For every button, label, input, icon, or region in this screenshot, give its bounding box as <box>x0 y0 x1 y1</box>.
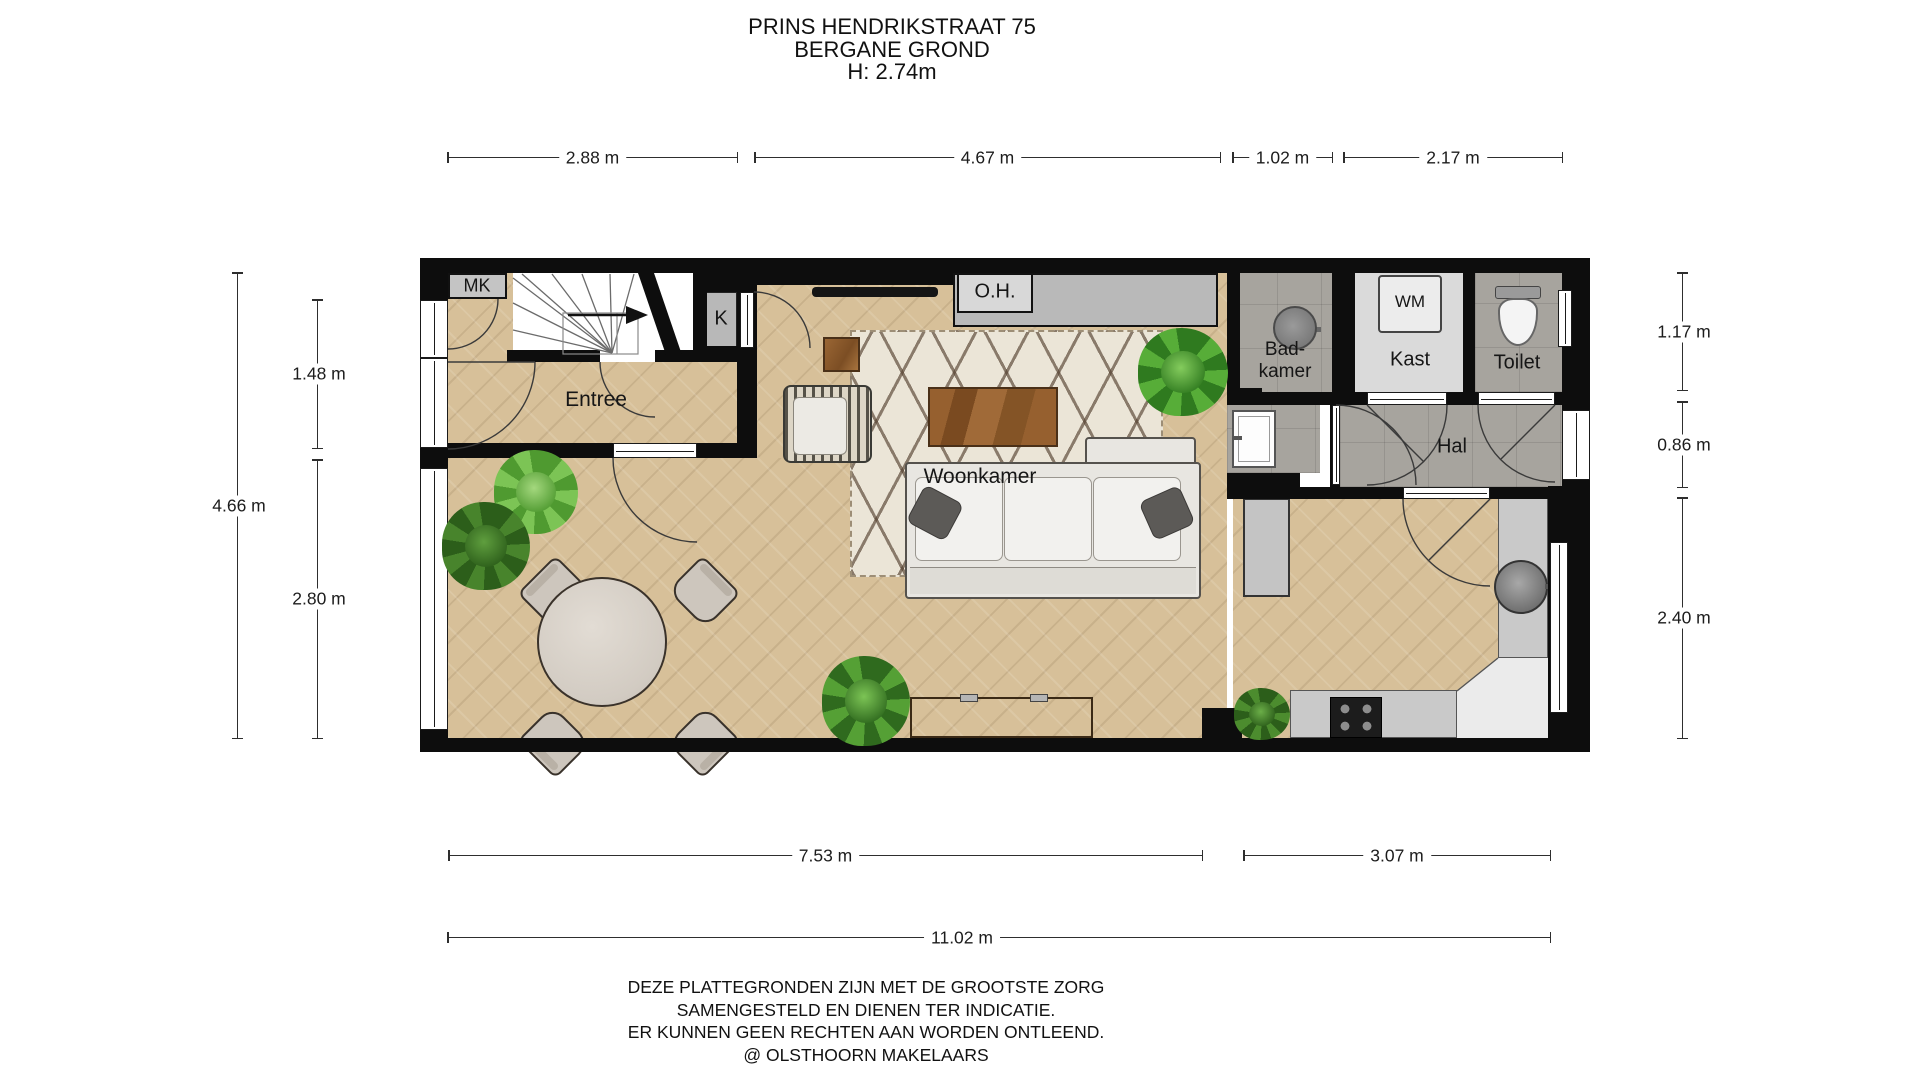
front-door <box>420 358 448 448</box>
entree-dining-door <box>613 443 697 458</box>
k-label: K <box>714 308 727 331</box>
dim-top-4-label: 2.17 m <box>1419 148 1487 169</box>
toilet-door <box>1478 392 1555 405</box>
plant-dark <box>442 502 530 590</box>
dim-top-3: 1.02 m <box>1233 157 1332 158</box>
badkamer-sink <box>1232 410 1276 468</box>
dim-bottom-1-label: 7.53 m <box>792 846 860 867</box>
badkamer-door <box>1332 405 1340 485</box>
wall-kast-toilet <box>1463 273 1475 392</box>
dim-right-upper: 1.17 m <box>1682 273 1683 390</box>
wall-hal-bottom <box>1227 487 1562 499</box>
hal-back-door <box>1562 410 1590 480</box>
floorplan-page: { "title": { "line1": "PRINS HENDRIKSTRA… <box>0 0 1920 1080</box>
title-address: PRINS HENDRIKSTRAAT 75 <box>492 16 1292 39</box>
dim-left-outer: 4.66 m <box>237 273 238 738</box>
plant-woonkamer <box>1138 328 1228 416</box>
badkamer-label-1: Bad- <box>1265 339 1305 361</box>
title-height: H: 2.74m <box>492 61 1292 84</box>
wall-entree-bottom <box>448 443 757 458</box>
dim-top-2: 4.67 m <box>755 157 1220 158</box>
stair-landing <box>665 273 693 355</box>
sofa-cushion <box>1004 477 1092 561</box>
wall-tv <box>737 273 953 285</box>
dim-right-middle-label: 0.86 m <box>1650 434 1718 455</box>
tv <box>812 287 938 297</box>
dining-table <box>537 577 667 707</box>
wm-label: WM <box>1395 292 1425 312</box>
plant-kitchen <box>1234 688 1290 740</box>
dim-left-upper: 1.48 m <box>317 300 318 448</box>
dim-left-upper-label: 1.48 m <box>285 364 353 385</box>
plant-monstera <box>822 656 910 746</box>
wall-outer-bottom <box>420 738 1590 752</box>
entree-label: Entree <box>565 388 627 412</box>
k-closet-door <box>740 292 754 348</box>
plan-title: PRINS HENDRIKSTRAAT 75 BERGANE GROND H: … <box>492 16 1292 84</box>
stairs-door-opening <box>600 350 655 362</box>
wall-below-k <box>705 346 757 362</box>
dim-bottom-1: 7.53 m <box>449 855 1202 856</box>
dim-right-lower: 2.40 m <box>1682 498 1683 738</box>
armchair <box>783 385 872 463</box>
wall-outer-top <box>420 258 1590 273</box>
disclaimer-line-1: DEZE PLATTEGRONDEN ZIJN MET DE GROOTSTE … <box>466 976 1266 999</box>
dining-window <box>420 468 448 730</box>
oh-label: O.H. <box>974 281 1015 304</box>
disclaimer-line-4: @ OLSTHOORN MAKELAARS <box>466 1044 1266 1067</box>
kast-label: Kast <box>1390 349 1430 372</box>
sideboard-handle <box>960 694 978 702</box>
disclaimer: DEZE PLATTEGRONDEN ZIJN MET DE GROOTSTE … <box>466 976 1266 1066</box>
sofa <box>905 437 1197 595</box>
disclaimer-line-3: ER KUNNEN GEEN RECHTEN AAN WORDEN ONTLEE… <box>466 1021 1266 1044</box>
stairs-floor <box>513 273 665 355</box>
wall-alcove-bottom <box>1227 473 1300 487</box>
sideboard-handle <box>1030 694 1048 702</box>
wall-woonkamer-badkamer <box>1227 273 1240 403</box>
wall-badkamer-kast <box>1332 273 1355 392</box>
stove <box>1330 697 1382 738</box>
sink-basin <box>1238 416 1270 462</box>
mk-label: MK <box>464 276 491 297</box>
dim-overall-label: 11.02 m <box>924 928 1000 949</box>
dim-bottom-2-label: 3.07 m <box>1363 846 1431 867</box>
dim-left-lower: 2.80 m <box>317 460 318 738</box>
sideboard <box>910 697 1093 738</box>
entree-window <box>420 300 448 358</box>
kitchen-cabinet <box>1243 498 1290 597</box>
title-floor: BERGANE GROND <box>492 39 1292 62</box>
dim-top-4: 2.17 m <box>1344 157 1562 158</box>
dim-right-lower-label: 2.40 m <box>1650 608 1718 629</box>
dim-top-1: 2.88 m <box>448 157 737 158</box>
dim-left-outer-label: 4.66 m <box>205 495 273 516</box>
sofa-backrest <box>910 567 1196 594</box>
dim-right-middle: 0.86 m <box>1682 402 1683 487</box>
woonkamer-label: Woonkamer <box>924 465 1037 489</box>
badkamer-label-2: kamer <box>1259 361 1312 383</box>
sink-faucet <box>1232 436 1242 440</box>
dim-left-lower-label: 2.80 m <box>285 589 353 610</box>
wall-landing-k <box>693 273 707 355</box>
dim-overall: 11.02 m <box>448 937 1550 938</box>
dim-bottom-2: 3.07 m <box>1244 855 1550 856</box>
side-table <box>823 337 860 372</box>
armchair-cushion <box>793 397 847 455</box>
floorplan: MK K Entree Woonkamer O.H. Bad- kamer WM… <box>420 258 1590 752</box>
kast-door <box>1367 392 1447 405</box>
toilet-window <box>1558 290 1572 347</box>
dim-top-2-label: 4.67 m <box>954 148 1022 169</box>
disclaimer-line-2: SAMENGESTELD EN DIENEN TER INDICATIE. <box>466 999 1266 1022</box>
dim-right-upper-label: 1.17 m <box>1650 321 1718 342</box>
kitchen-window <box>1550 542 1568 713</box>
kitchen-door <box>1403 487 1490 499</box>
hal-label: Hal <box>1437 436 1467 459</box>
kitchen-sink <box>1494 560 1548 614</box>
toilet-label: Toilet <box>1494 352 1541 375</box>
dim-top-3-label: 1.02 m <box>1249 148 1317 169</box>
dim-top-1-label: 2.88 m <box>559 148 627 169</box>
